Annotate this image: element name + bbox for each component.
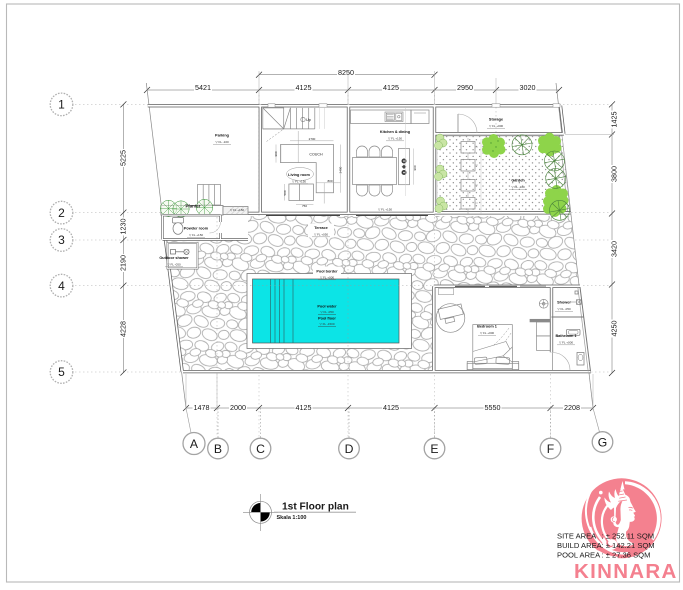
svg-text:3020: 3020 [520,83,536,92]
svg-text:▽ FL +150: ▽ FL +150 [378,208,392,212]
svg-text:: ± 142.21 SQM: : ± 142.21 SQM [602,541,655,550]
svg-text:Planter: Planter [186,204,201,209]
svg-text:4125: 4125 [296,403,312,412]
svg-text:E: E [430,442,438,456]
svg-text:POOL AREA: POOL AREA [557,551,601,560]
svg-text:BUILD AREA: BUILD AREA [557,541,603,550]
svg-text:800: 800 [327,179,332,183]
svg-text:▽ FL -050: ▽ FL -050 [167,263,181,267]
svg-text:▽ FL -100: ▽ FL -100 [511,185,525,189]
svg-text:2950: 2950 [457,83,473,92]
svg-text:1425: 1425 [609,112,618,128]
svg-text:Pool floor: Pool floor [318,317,336,321]
svg-text:Parking: Parking [215,134,230,138]
svg-text:▽ FL +150: ▽ FL +150 [189,233,203,237]
svg-text:750: 750 [302,204,307,208]
svg-text:: ± 252.11 SQM: : ± 252.11 SQM [602,532,655,541]
svg-text:Bathroom 1: Bathroom 1 [555,334,576,338]
svg-text:5: 5 [58,365,65,379]
svg-text:2700: 2700 [309,137,316,141]
svg-text:5421: 5421 [195,83,211,92]
svg-text:G: G [598,436,607,450]
svg-text:5225: 5225 [119,150,128,166]
svg-text:4125: 4125 [296,83,312,92]
svg-text:▽ FL +050: ▽ FL +050 [314,233,328,237]
svg-text:F: F [547,442,554,456]
svg-text:8250: 8250 [338,68,354,77]
svg-text:▽ FL -100: ▽ FL -100 [215,140,229,144]
svg-text:▽ FL +000: ▽ FL +000 [489,124,503,128]
svg-text:KINNARA: KINNARA [574,560,678,583]
svg-text:C: C [256,442,265,456]
svg-text:Bedroom 1: Bedroom 1 [477,325,497,329]
svg-text:4125: 4125 [383,403,399,412]
svg-text:D: D [345,442,354,456]
svg-text:Kitchen & dining: Kitchen & dining [380,130,411,134]
svg-text:Up: Up [306,118,311,122]
svg-text:900: 900 [274,151,278,156]
svg-text:5550: 5550 [485,403,501,412]
svg-text:▽ FL +000: ▽ FL +000 [320,276,334,280]
svg-text:B: B [214,442,222,456]
svg-text:1: 1 [58,98,65,112]
svg-text:2400: 2400 [339,166,343,173]
svg-text:SITE AREA: SITE AREA [557,532,597,541]
svg-text:2208: 2208 [564,403,580,412]
svg-text:COUCH: COUCH [309,153,323,157]
svg-text:1st Floor plan: 1st Floor plan [282,501,349,512]
svg-text:2000: 2000 [230,403,246,412]
svg-text:▽ FL -050: ▽ FL -050 [557,307,571,311]
svg-text:Outdoor shower: Outdoor shower [159,256,189,260]
svg-text:3420: 3420 [609,241,618,257]
svg-text:Pool border: Pool border [316,270,338,274]
svg-text:Powder room: Powder room [184,227,209,231]
svg-text:: ± 27.36 SQM: : ± 27.36 SQM [602,551,651,560]
svg-text:2190: 2190 [119,255,128,271]
svg-text:▽ FL +150: ▽ FL +150 [230,208,244,212]
svg-text:4250: 4250 [609,321,618,337]
svg-text:▽ FL +150: ▽ FL +150 [388,137,402,141]
svg-text:4: 4 [58,279,65,293]
svg-text:▽ FL -1500: ▽ FL -1500 [319,322,334,326]
svg-text:500: 500 [283,190,287,195]
svg-text:3: 3 [58,233,65,247]
svg-text:▽ FL +000: ▽ FL +000 [559,341,573,345]
svg-text:Shower: Shower [557,301,571,305]
svg-text:1478: 1478 [194,403,210,412]
svg-text:Living room: Living room [288,173,310,177]
svg-text:▽ FL +150: ▽ FL +150 [292,180,306,184]
svg-text:Garden: Garden [511,179,525,183]
svg-text:Skala 1:100: Skala 1:100 [277,515,307,521]
svg-text:A: A [190,437,199,451]
svg-text:Storage: Storage [489,118,503,122]
svg-text:Pool water: Pool water [317,305,337,309]
svg-text:3800: 3800 [609,166,618,182]
svg-text:▽ FL -050: ▽ FL -050 [320,310,334,314]
svg-text:Terrace: Terrace [314,226,327,230]
svg-text:2: 2 [58,206,65,220]
svg-text:4228: 4228 [119,321,128,337]
svg-text:4125: 4125 [383,83,399,92]
svg-text:▽ FL +000: ▽ FL +000 [480,331,494,335]
svg-text:1230: 1230 [119,219,128,235]
